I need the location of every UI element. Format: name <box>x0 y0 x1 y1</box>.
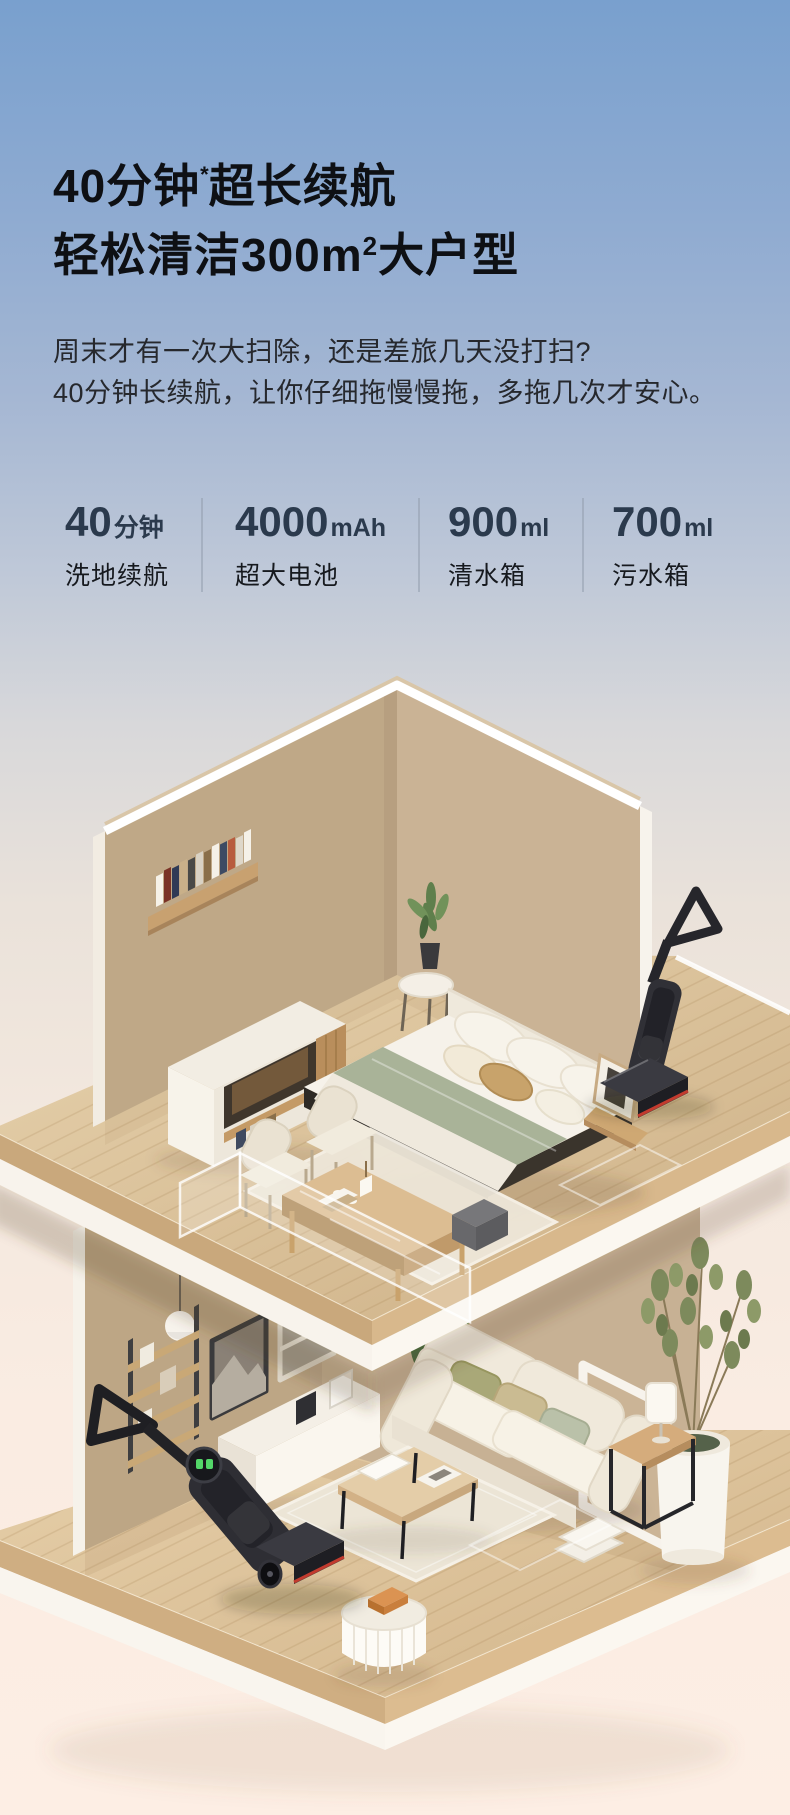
product-detail-section: 40分钟*超长续航 轻松清洁300m2大户型 周末才有一次大扫除，还是差旅几天没… <box>0 0 790 1815</box>
spec-clean-tank: 900ml 清水箱 <box>420 498 584 592</box>
spec-dirty-tank: 700ml 污水箱 <box>584 498 754 592</box>
title-line1: 40分钟*超长续航 <box>53 160 397 212</box>
page-title: 40分钟*超长续航 轻松清洁300m2大户型 <box>53 156 519 292</box>
spec-runtime: 40分钟 洗地续航 <box>55 498 203 592</box>
house-illustration <box>0 585 790 1815</box>
spec-strip: 40分钟 洗地续航 4000mAh 超大电池 900ml 清水箱 700ml 污… <box>55 498 754 592</box>
title-line2: 轻松清洁300m2大户型 <box>53 229 519 281</box>
subtitle-copy: 周末才有一次大扫除，还是差旅几天没打扫? 40分钟长续航，让你仔细拖慢慢拖，多拖… <box>53 332 717 414</box>
spec-battery: 4000mAh 超大电池 <box>203 498 420 592</box>
superscript-2: 2 <box>363 231 378 261</box>
asterisk-mark: * <box>200 162 209 187</box>
